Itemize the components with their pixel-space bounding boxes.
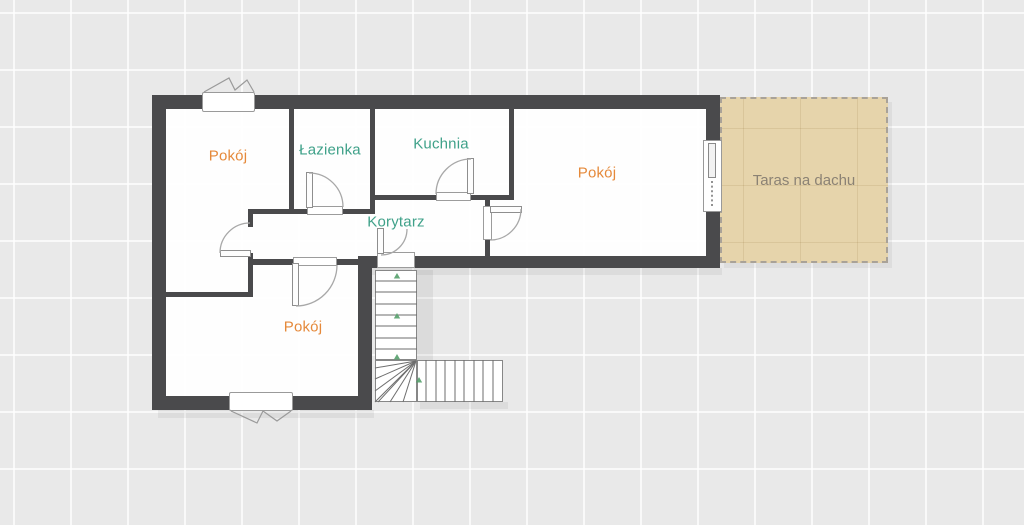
door-leaf [490, 206, 522, 213]
exterior-wall [358, 262, 372, 410]
exterior-wall [415, 256, 720, 268]
room-label-pokoj-top-left: Pokój [209, 148, 248, 165]
room-floor-fill [166, 256, 358, 396]
stair-flight [375, 270, 417, 360]
stair-flight [417, 360, 503, 402]
exterior-wall [152, 95, 166, 410]
terrace-area: Taras na dachu [720, 97, 888, 263]
interior-wall [485, 238, 490, 256]
door-leaf [306, 172, 313, 208]
wall-shadow [158, 410, 374, 418]
door-threshold [293, 257, 337, 266]
room-label-lazienka: Łazienka [299, 142, 361, 159]
window-opening-symbol [204, 78, 254, 92]
interior-wall [253, 259, 293, 265]
room-floor-fill [166, 109, 706, 256]
door-threshold [436, 192, 471, 201]
floorplan-canvas: Taras na dachu Pokój Łazienka Kuchnia Po… [0, 0, 1024, 525]
stair-flight [375, 360, 417, 402]
interior-wall [509, 109, 514, 200]
stair-shade [417, 270, 433, 360]
interior-wall [471, 195, 514, 200]
interior-wall [248, 209, 253, 227]
door-leaf [220, 250, 251, 257]
window [229, 392, 293, 411]
interior-wall [250, 209, 307, 214]
balcony-door-leaf [708, 143, 716, 178]
interior-wall [289, 109, 294, 213]
door-leaf [377, 228, 384, 254]
interior-wall [166, 292, 253, 297]
wall-shadow [420, 402, 508, 409]
interior-wall [375, 195, 436, 200]
room-label-pokoj-right: Pokój [578, 165, 617, 182]
room-label-kuchnia: Kuchnia [413, 136, 469, 153]
window [202, 92, 255, 112]
interior-wall [337, 259, 363, 265]
door-leaf [292, 263, 299, 306]
door-leaf [467, 158, 474, 194]
door-threshold [377, 252, 415, 268]
room-label-korytarz: Korytarz [367, 214, 424, 231]
room-label-pokoj-bottom: Pokój [284, 319, 323, 336]
terrace-label: Taras na dachu [753, 172, 856, 189]
